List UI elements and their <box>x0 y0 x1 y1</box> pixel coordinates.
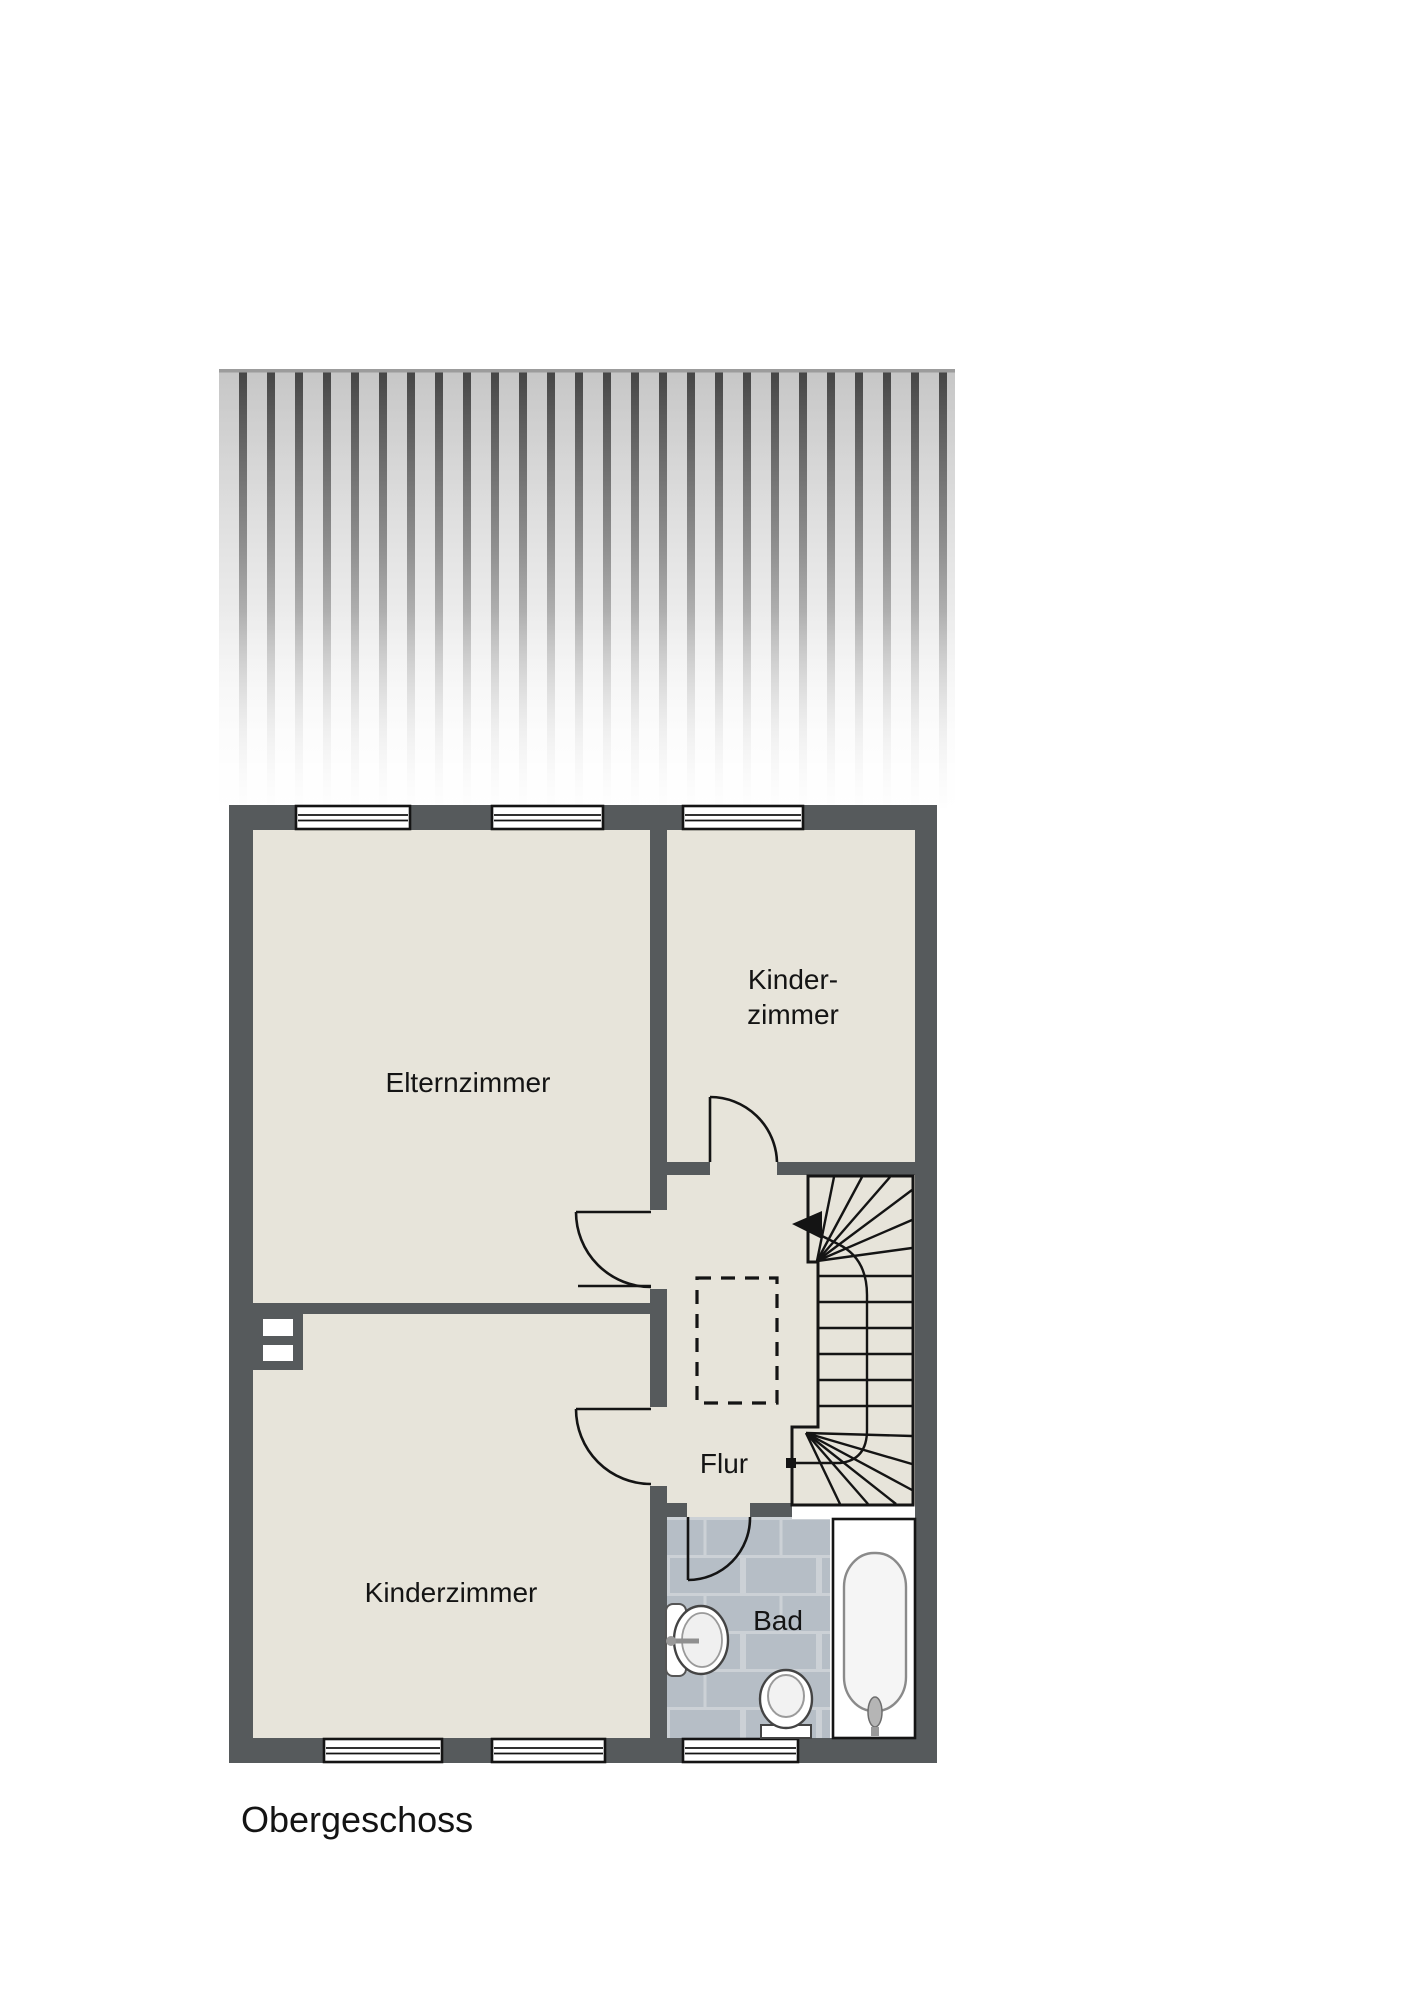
label-bad: Bad <box>753 1605 803 1636</box>
wall-flur-left-middle <box>650 1289 667 1407</box>
wall-elternzimmer-kinderzimmer-divider <box>253 1303 650 1314</box>
label-elternzimmer: Elternzimmer <box>386 1067 551 1098</box>
roof-fade <box>219 370 955 808</box>
label-kinderzimmer-top-line2: zimmer <box>747 999 839 1030</box>
wall-elternzimmer-kinderzimmer-top <box>650 830 667 1210</box>
label-kinderzimmer-top-line1: Kinder- <box>748 964 838 995</box>
roof-ridge-line <box>219 369 955 373</box>
outer-wall-right <box>915 805 937 1763</box>
bathtub-basin <box>844 1553 906 1711</box>
window-bottom-2 <box>492 1739 605 1762</box>
toilet-bowl-inner <box>768 1675 804 1717</box>
wall-bad-top-left <box>650 1503 687 1517</box>
outer-wall-left <box>229 805 253 1763</box>
window-bottom-3 <box>683 1739 798 1762</box>
floorplan-drawing: Elternzimmer Kinder- zimmer Kinderzimmer… <box>0 0 1413 2000</box>
window-bottom-1 <box>324 1739 442 1762</box>
walking-line-start-dot <box>786 1458 796 1468</box>
stair-landing-strip <box>792 1505 915 1519</box>
bathtub-drain <box>871 1727 879 1736</box>
wall-stair-top <box>777 1162 915 1175</box>
wall-kinderzimmer-bad <box>650 1486 667 1738</box>
floorplan-page: Elternzimmer Kinder- zimmer Kinderzimmer… <box>0 0 1413 2000</box>
wall-stair-top-left-stub <box>667 1162 710 1175</box>
window-top-3 <box>683 806 803 829</box>
wall-vent-slot-2 <box>263 1345 293 1361</box>
sink <box>666 1604 728 1676</box>
label-flur: Flur <box>700 1448 748 1479</box>
window-top-1 <box>296 806 410 829</box>
window-top-2 <box>492 806 603 829</box>
wall-vent <box>253 1313 303 1370</box>
bathtub <box>833 1519 915 1738</box>
toilet <box>760 1670 812 1738</box>
floor-title: Obergeschoss <box>241 1799 473 1840</box>
wall-bad-top-right <box>750 1503 792 1517</box>
roof-hatching <box>219 369 955 808</box>
bathtub-faucet <box>868 1697 882 1727</box>
sink-tap-knob <box>666 1636 676 1646</box>
label-kinderzimmer-bottom: Kinderzimmer <box>365 1577 538 1608</box>
wall-vent-slot-1 <box>263 1319 293 1336</box>
